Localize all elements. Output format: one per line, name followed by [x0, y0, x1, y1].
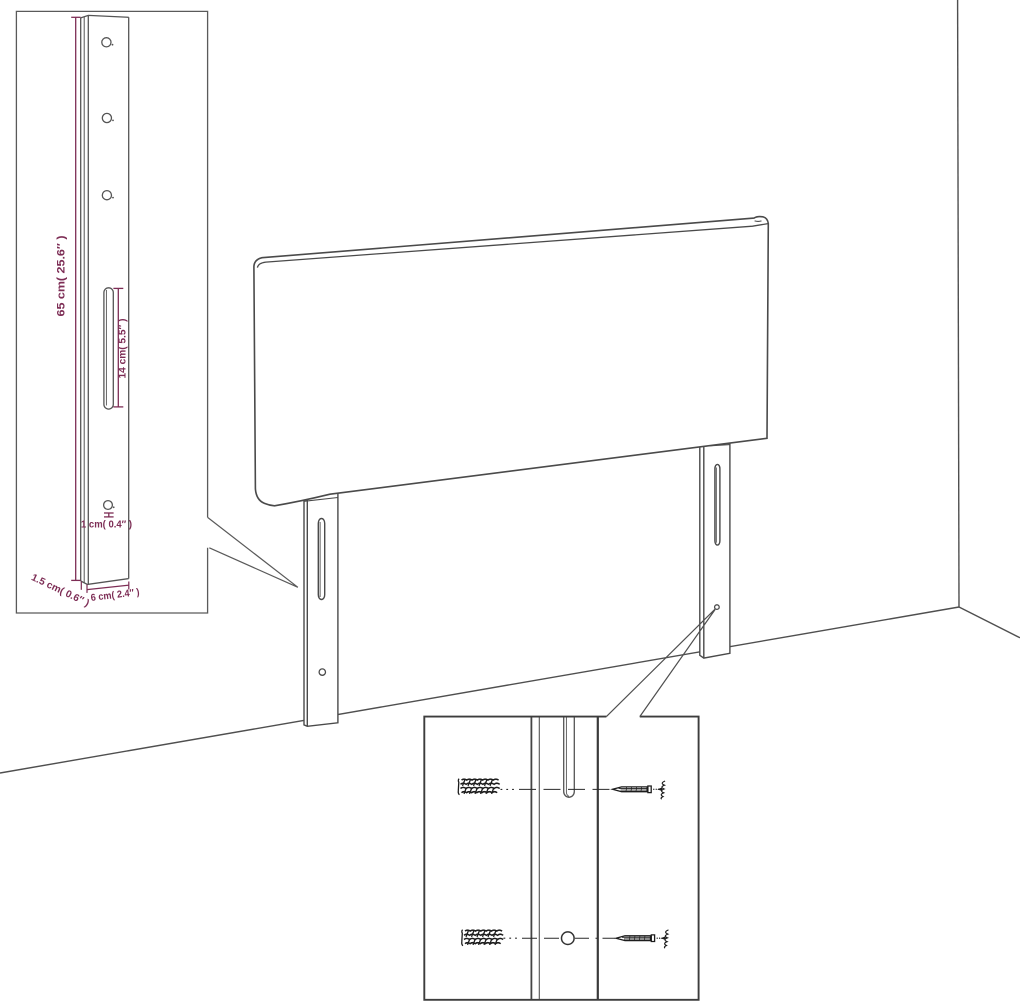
svg-text:65 cm( 25.6″ ): 65 cm( 25.6″ ) — [56, 235, 68, 316]
svg-text:14 cm( 5.5″ ): 14 cm( 5.5″ ) — [118, 319, 129, 379]
svg-text:1 cm( 0.4″ ): 1 cm( 0.4″ ) — [81, 520, 132, 531]
